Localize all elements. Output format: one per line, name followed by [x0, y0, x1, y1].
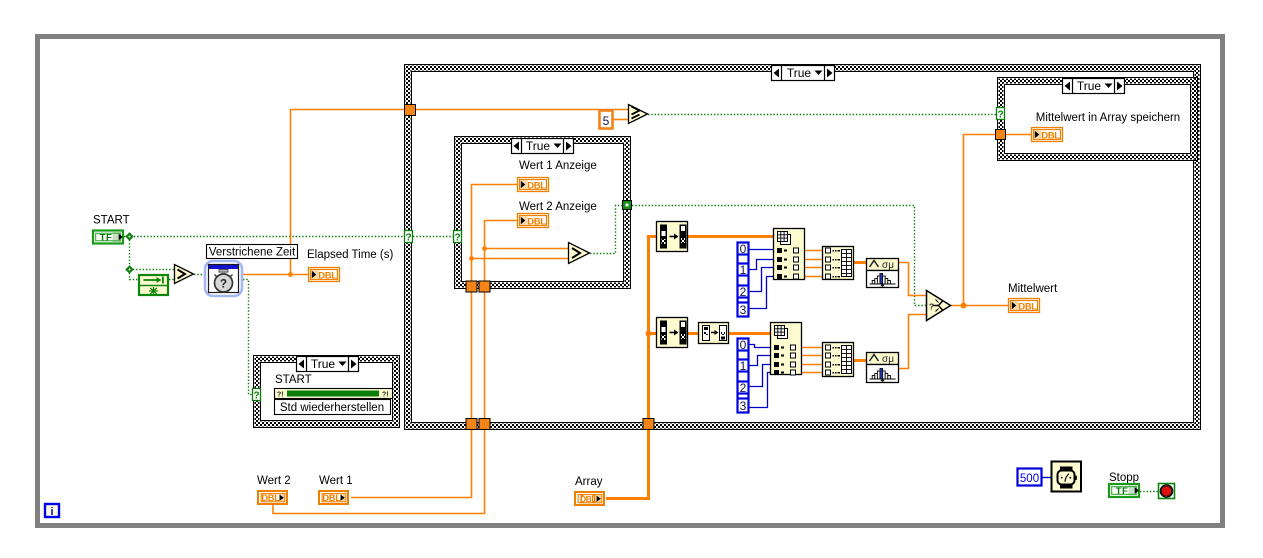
svg-text:DBL: DBL	[261, 493, 280, 503]
svg-text:DBL: DBL	[318, 270, 337, 281]
svg-text:?: ?	[454, 233, 460, 244]
svg-text:?!: ?!	[277, 392, 284, 399]
svg-text:DBL: DBL	[527, 216, 546, 227]
svg-text:?!: ?!	[382, 392, 389, 399]
svg-text:Wert 2: Wert 2	[257, 475, 291, 487]
svg-text:DBL: DBL	[580, 494, 596, 504]
svg-text:1: 1	[740, 263, 747, 277]
svg-text:1: 1	[740, 359, 747, 373]
svg-text:Wert 2 Anzeige: Wert 2 Anzeige	[519, 201, 597, 213]
svg-text:Elapsed Time (s): Elapsed Time (s)	[307, 249, 393, 261]
svg-text:Mittelwert: Mittelwert	[1008, 283, 1058, 295]
svg-text:DBL: DBL	[322, 493, 341, 503]
svg-text:2: 2	[740, 285, 747, 299]
svg-text:Wert 1: Wert 1	[319, 475, 353, 487]
svg-text:500: 500	[1020, 473, 1039, 485]
svg-text:0: 0	[740, 338, 747, 352]
svg-text:σμ: σμ	[882, 260, 894, 271]
svg-text:3: 3	[740, 303, 747, 317]
svg-text:True: True	[311, 357, 336, 371]
svg-text:START: START	[93, 215, 130, 227]
svg-text:?: ?	[929, 302, 934, 312]
svg-text:i: i	[50, 506, 53, 518]
svg-text:?: ?	[405, 233, 411, 244]
svg-text:DBL: DBL	[1018, 301, 1037, 312]
svg-text:2: 2	[740, 381, 747, 395]
svg-text:Array: Array	[575, 476, 603, 488]
svg-text:TF: TF	[100, 233, 113, 244]
svg-text:True: True	[787, 66, 812, 80]
svg-text:3: 3	[740, 399, 747, 413]
svg-text:?: ?	[220, 279, 227, 291]
svg-text:?: ?	[997, 110, 1003, 121]
svg-text:START: START	[275, 374, 312, 386]
svg-text:5: 5	[603, 114, 610, 128]
svg-text:True: True	[526, 139, 551, 153]
svg-text:TF: TF	[1116, 486, 1129, 497]
svg-text:True: True	[1077, 79, 1102, 93]
svg-text:?: ?	[253, 391, 259, 402]
svg-text:Mittelwert in Array speichern: Mittelwert in Array speichern	[1036, 112, 1180, 124]
svg-text:Verstrichene Zeit: Verstrichene Zeit	[209, 247, 296, 259]
svg-text:DBL: DBL	[527, 180, 546, 191]
svg-text:Std wiederherstellen: Std wiederherstellen	[280, 402, 384, 414]
svg-text:σμ: σμ	[882, 354, 894, 365]
svg-text:0: 0	[740, 242, 747, 256]
svg-text:DBL: DBL	[1041, 130, 1060, 141]
svg-text:Wert 1 Anzeige: Wert 1 Anzeige	[519, 160, 597, 172]
svg-text:Stopp: Stopp	[1109, 472, 1139, 484]
